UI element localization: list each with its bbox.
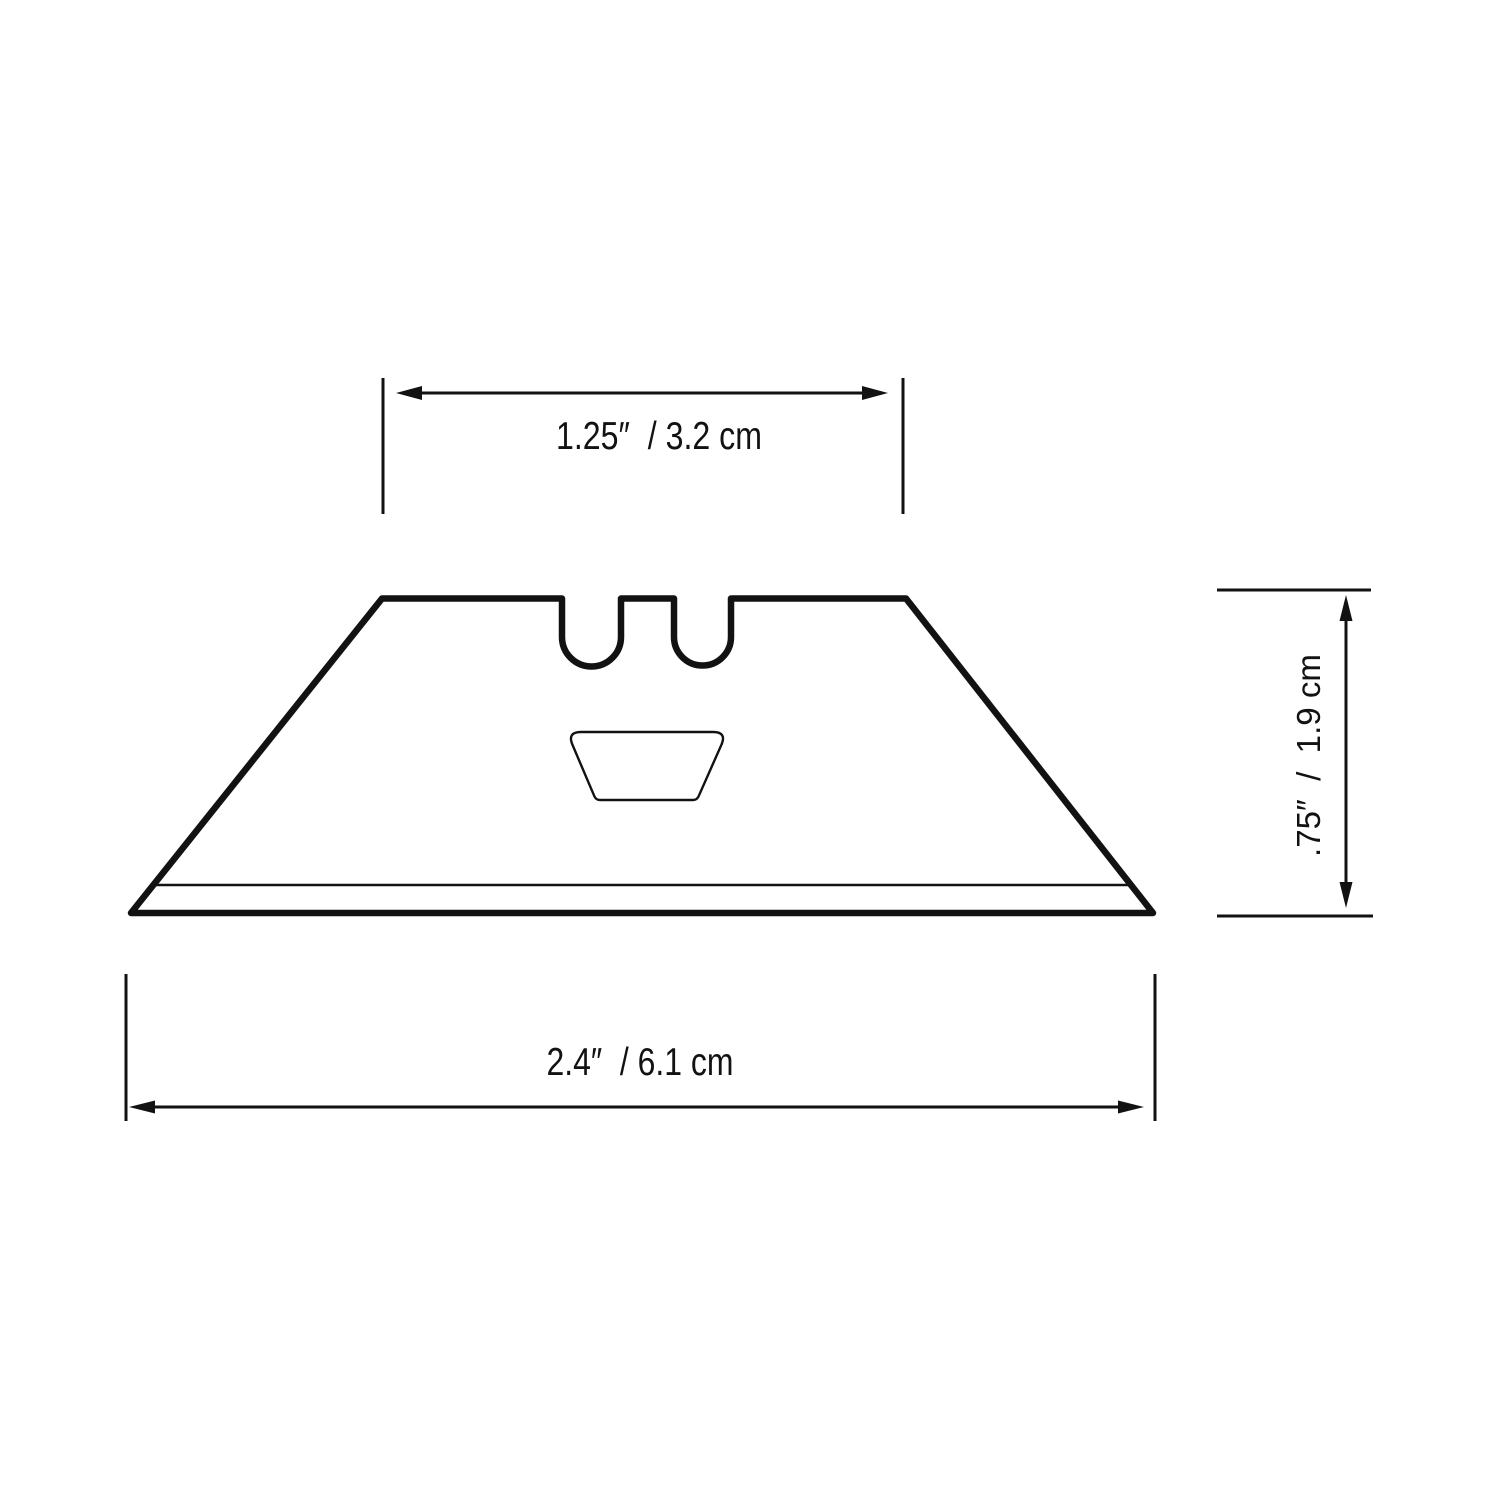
svg-text:1.25″ / 3.2 cm: 1.25″ / 3.2 cm [556, 415, 762, 458]
svg-text:.75″ / 1.9 cm: .75″ / 1.9 cm [1290, 654, 1327, 857]
svg-text:2.4″ / 6.1 cm: 2.4″ / 6.1 cm [547, 1041, 734, 1084]
